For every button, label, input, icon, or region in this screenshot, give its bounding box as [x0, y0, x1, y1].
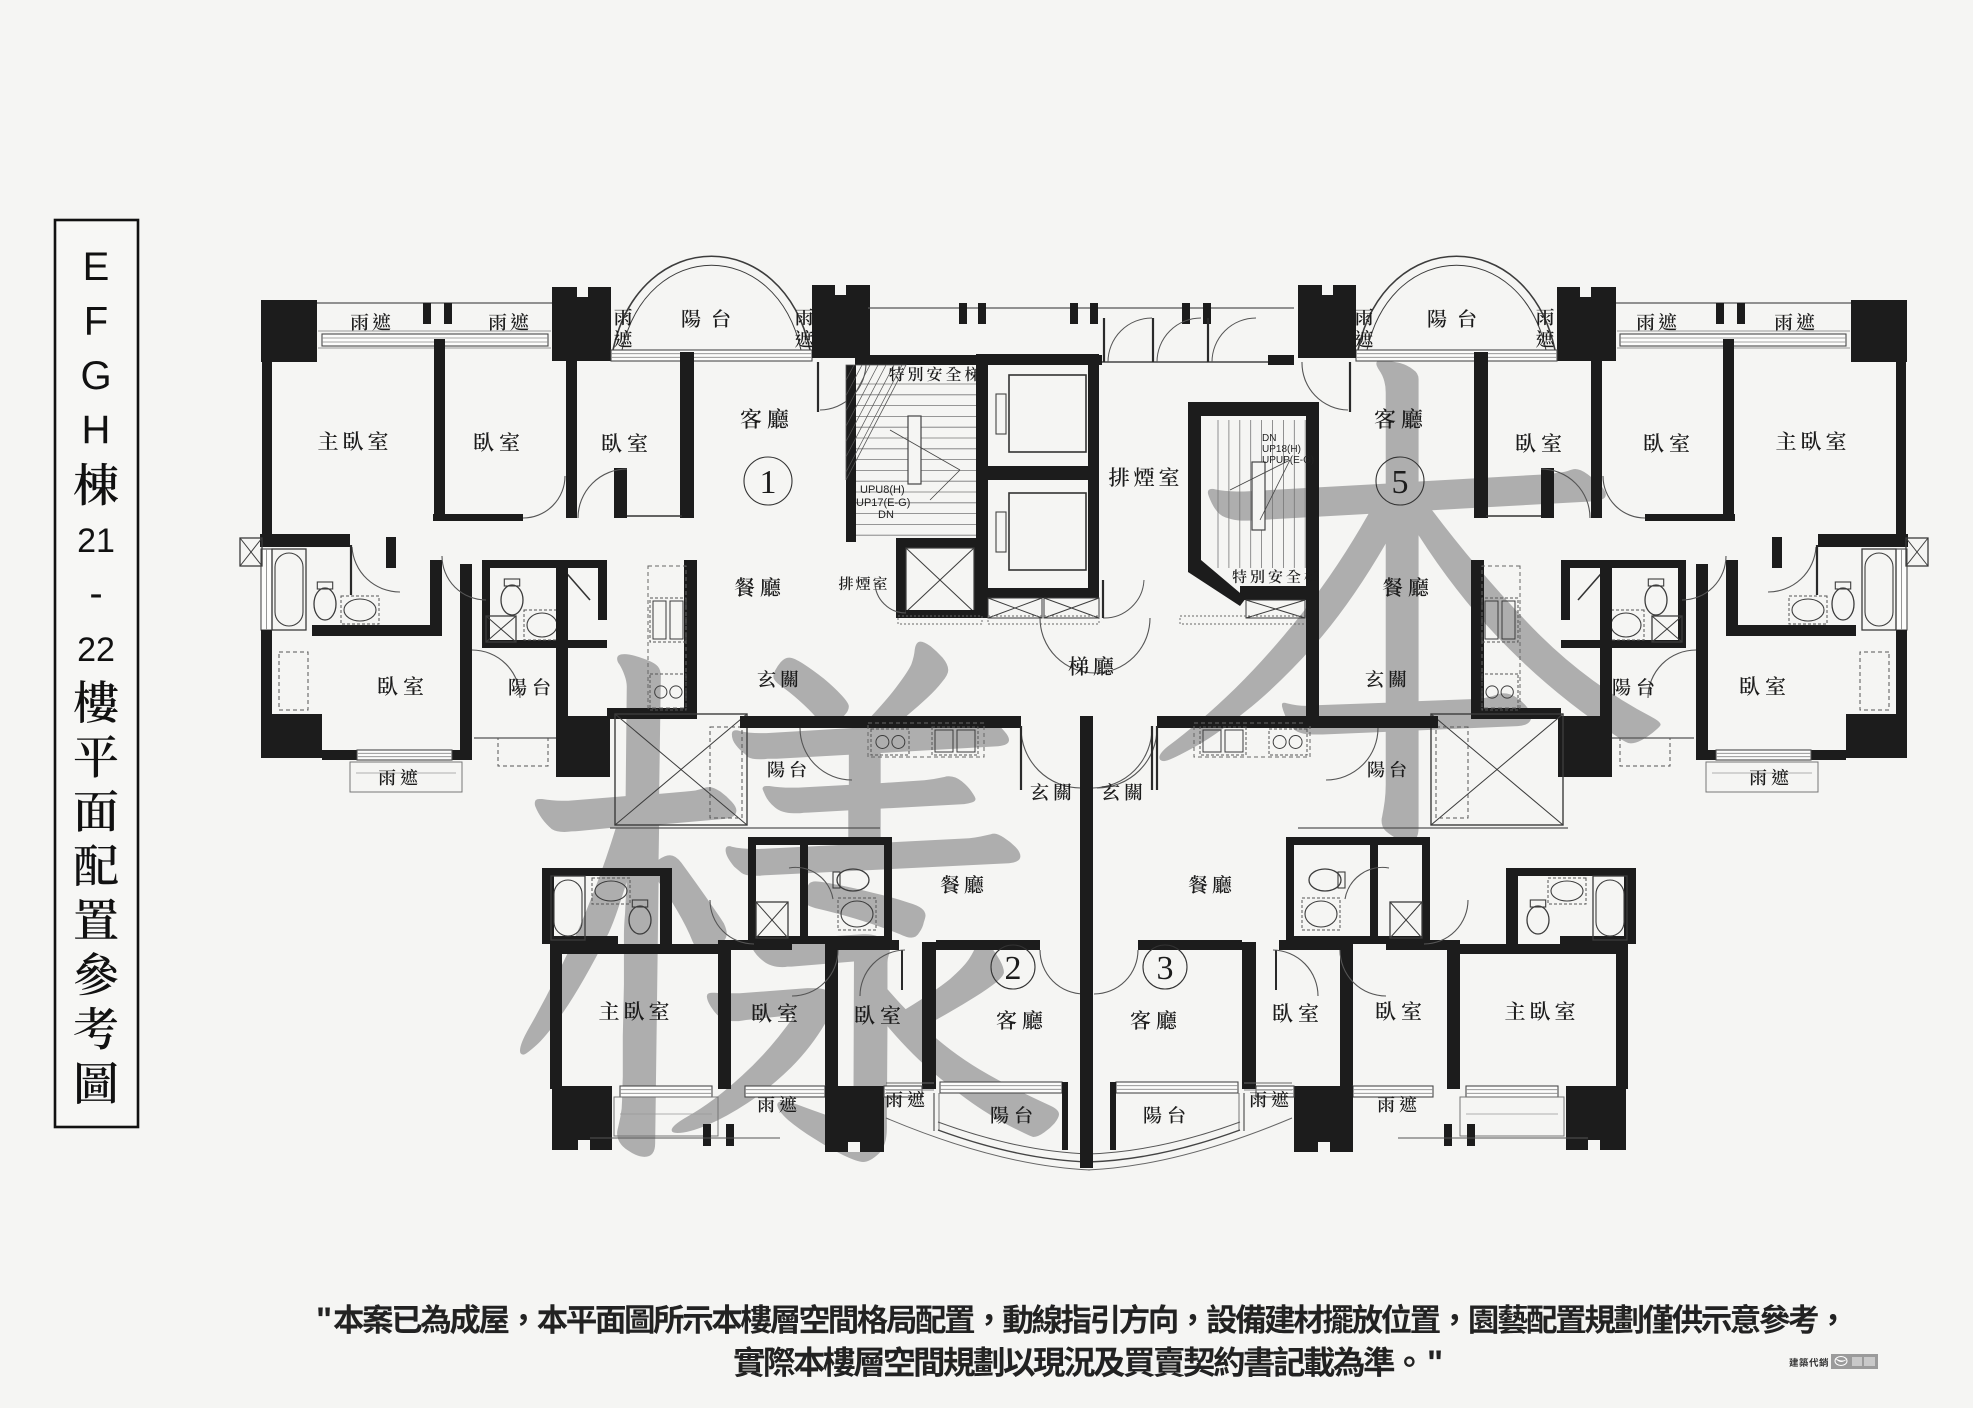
- svg-text:5: 5: [1392, 464, 1409, 501]
- svg-text:2: 2: [1005, 950, 1022, 987]
- svg-text:22: 22: [77, 631, 115, 669]
- svg-text:3: 3: [1157, 950, 1174, 987]
- svg-text:UPU8(H): UPU8(H): [860, 484, 905, 496]
- svg-text:UP17(E-G): UP17(E-G): [856, 497, 910, 509]
- svg-text:DN: DN: [1262, 433, 1276, 444]
- svg-text:F: F: [84, 299, 108, 343]
- svg-text:UPUP(E-G): UPUP(E-G): [1262, 455, 1314, 466]
- svg-text:": ": [1427, 1344, 1443, 1382]
- svg-text:DN: DN: [878, 509, 894, 521]
- svg-text:": ": [316, 1301, 332, 1339]
- svg-text:UP18(H): UP18(H): [1262, 444, 1301, 455]
- svg-text:H: H: [82, 408, 111, 452]
- svg-text:1: 1: [760, 464, 777, 501]
- svg-text:G: G: [80, 354, 111, 398]
- svg-text:E: E: [83, 245, 110, 289]
- svg-text:-: -: [89, 571, 102, 615]
- svg-text:21: 21: [77, 522, 115, 560]
